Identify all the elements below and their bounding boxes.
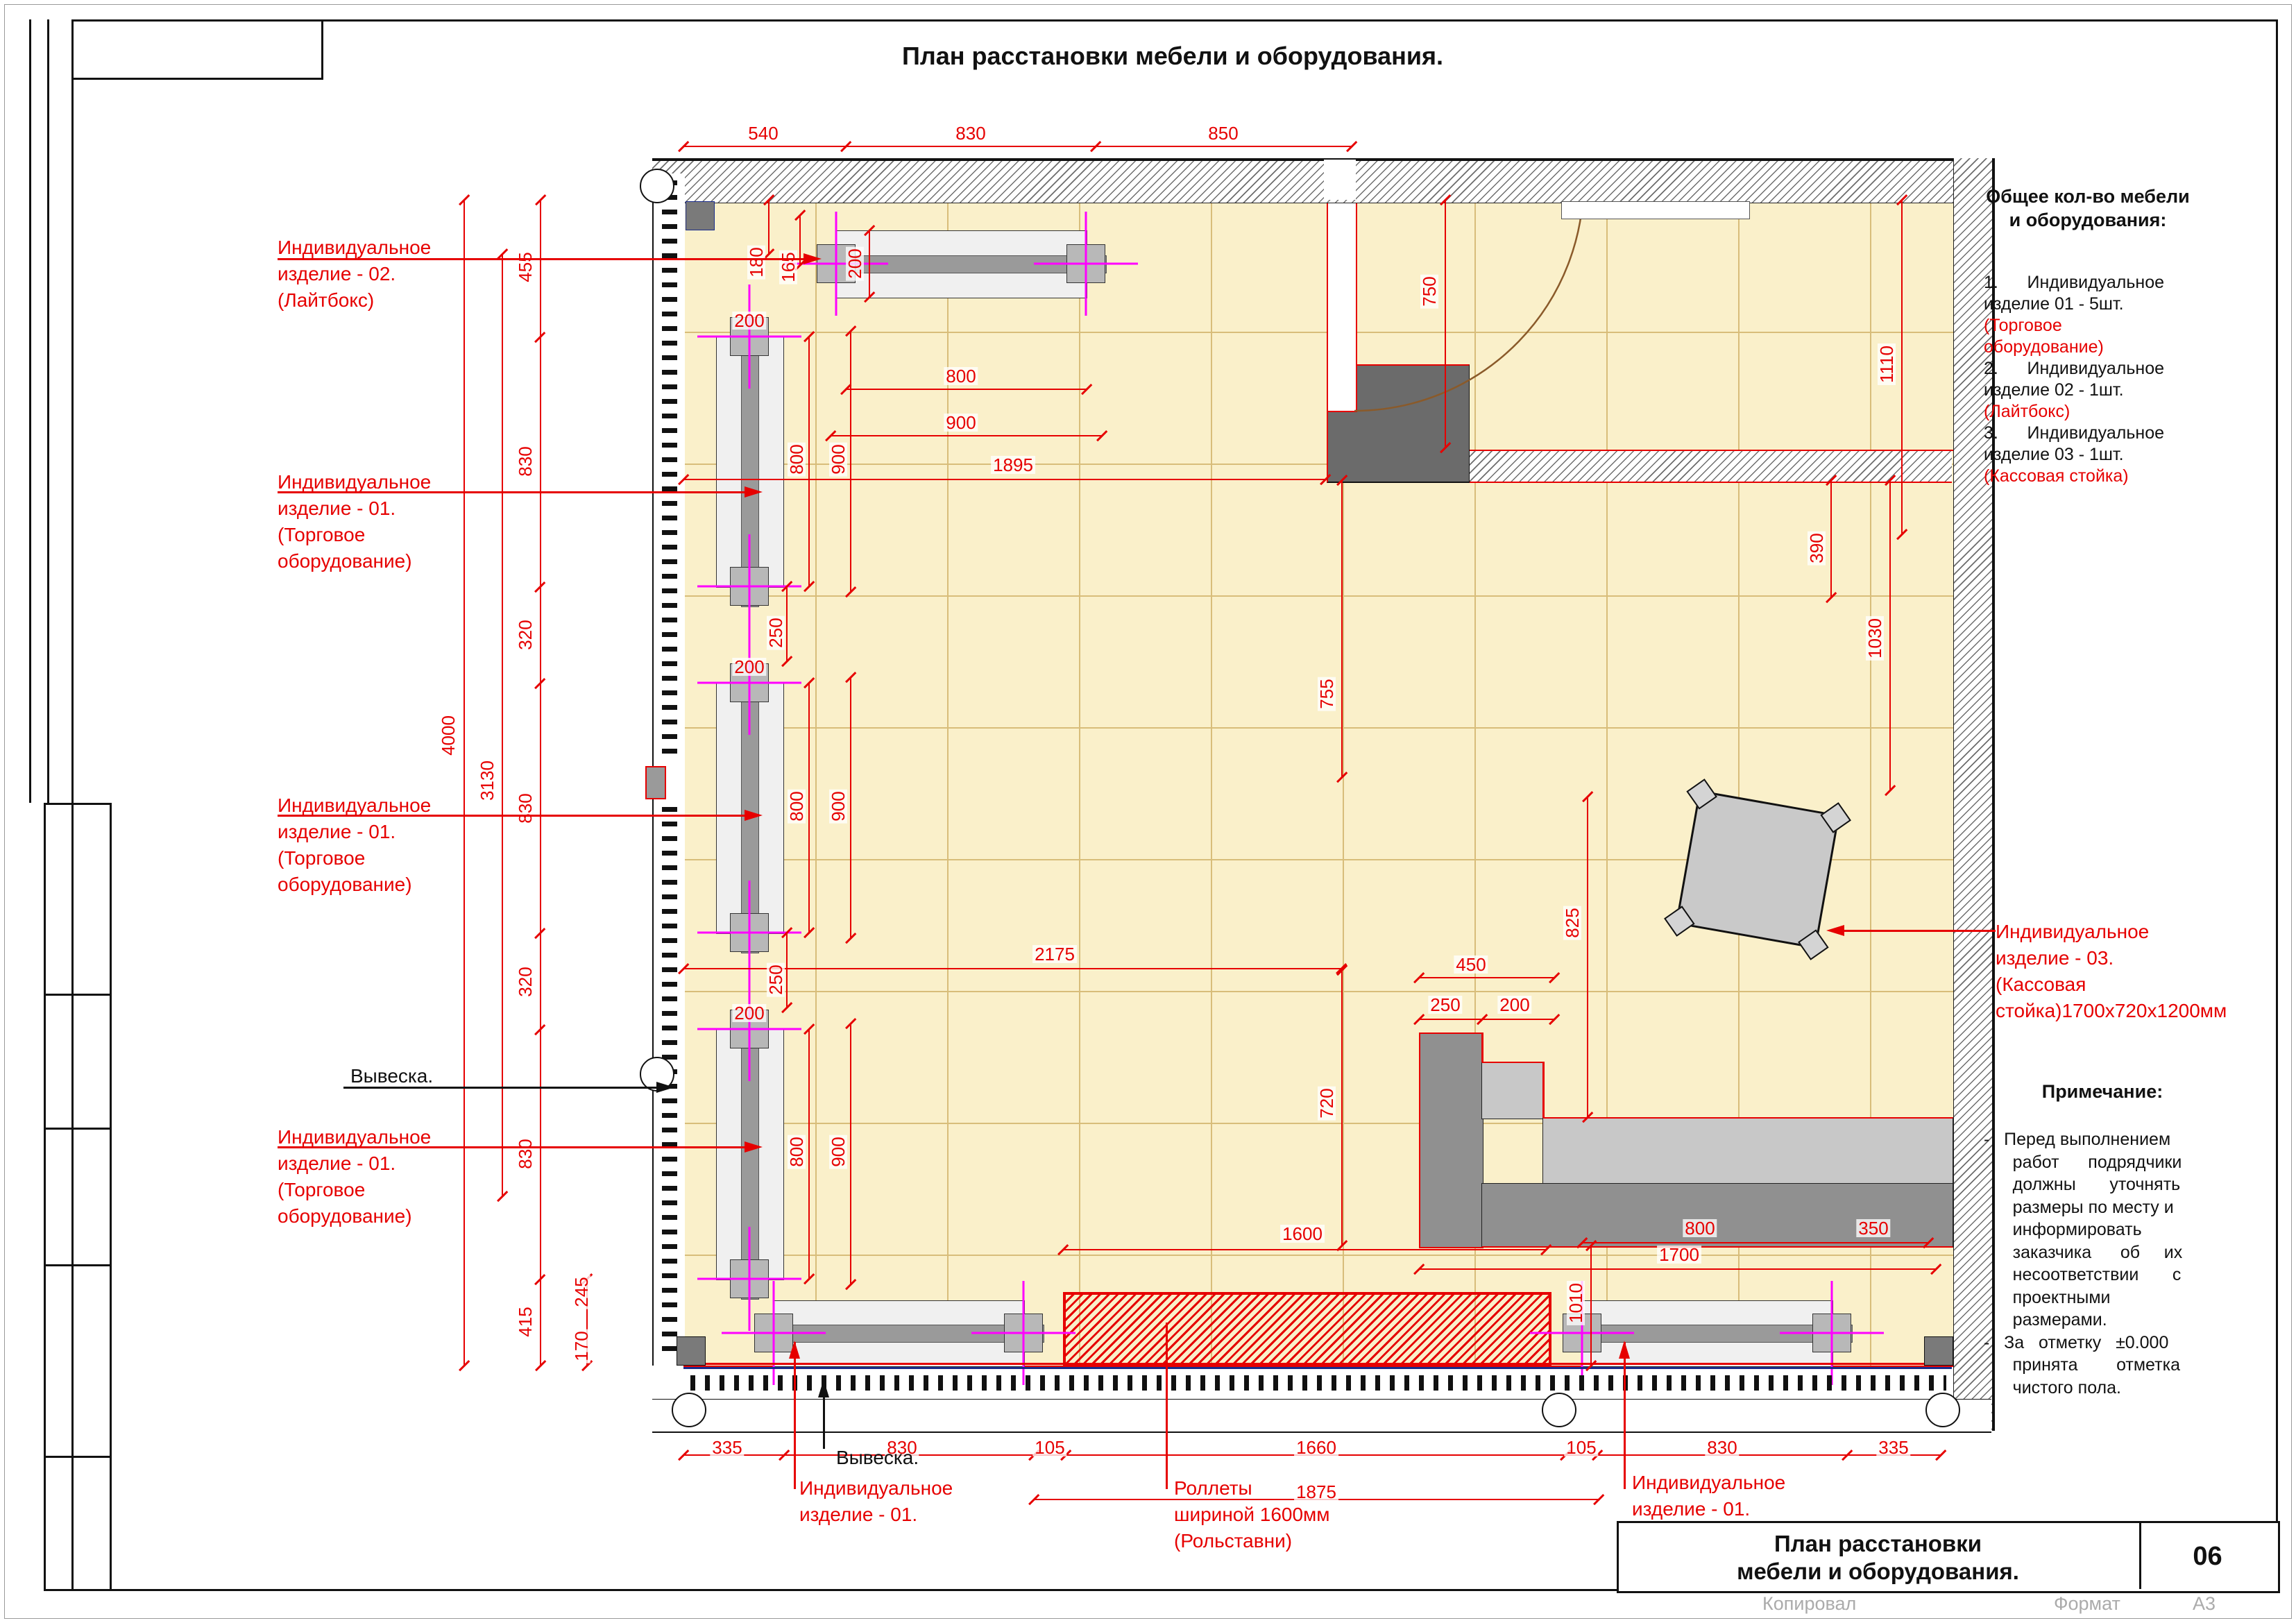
summary-item-line: 2. Индивидуальное — [1984, 358, 2234, 380]
dim-label: 200 — [732, 1004, 766, 1022]
dim-label: 1895 — [991, 456, 1035, 474]
summary-item-line: изделие 02 - 1шт. — [1984, 380, 2234, 401]
title-block-name-1: План расстановки — [1617, 1531, 2139, 1557]
leader-arrowhead-icon — [1619, 1341, 1630, 1359]
dimension-line — [831, 435, 1102, 436]
dim-label: 200 — [732, 658, 766, 676]
equipment-label: Вывеска. — [836, 1445, 919, 1471]
door-swing-arc — [1346, 167, 1596, 423]
dim-label: 830 — [516, 444, 534, 478]
dim-label: 1110 — [1878, 343, 1896, 385]
footer-copied: Копировал — [1762, 1593, 1856, 1615]
dim-label: 1660 — [1294, 1438, 1338, 1456]
equipment-label: Индивидуальноеизделие - 01.(Торговоеобор… — [278, 1124, 431, 1230]
summary-heading-1: Общее кол-во мебели — [1984, 186, 2192, 207]
leader-line — [1166, 1323, 1168, 1489]
dim-label: 3130 — [478, 758, 496, 803]
dim-label: 170 — [572, 1329, 590, 1363]
top-wall — [652, 158, 1991, 203]
dim-label: 415 — [516, 1305, 534, 1339]
sheet-number: 06 — [2139, 1542, 2276, 1572]
dim-label: 180 — [747, 245, 765, 279]
title-block-name-2: мебели и оборудования. — [1617, 1558, 2139, 1585]
note-line: чистого пола. — [1984, 1377, 2213, 1400]
dimension-line — [1445, 200, 1446, 448]
summary-item-line: 3. Индивидуальное — [1984, 423, 2234, 444]
dim-label: 320 — [516, 618, 534, 652]
dimension-line — [786, 933, 788, 1008]
dim-label: 455 — [516, 250, 534, 284]
dim-label: 105 — [1032, 1438, 1066, 1456]
note-line: принята отметка — [1984, 1354, 2213, 1377]
note-list: - Перед выполнением работ подрядчики дол… — [1984, 1128, 2213, 1399]
fixture-axis-cross-icon — [835, 212, 837, 316]
summary-item-line: 1. Индивидуальное — [1984, 272, 2234, 294]
dim-label: 1010 — [1567, 1281, 1585, 1325]
fixture-axis-cross-icon — [1085, 212, 1087, 316]
dim-label: 900 — [829, 789, 847, 823]
equipment-label: Индивидуальноеизделие - 01.(Торговоеобор… — [278, 792, 431, 898]
dimension-line — [808, 337, 810, 586]
equipment-label: Вывеска. — [350, 1063, 433, 1089]
note-line: размеры по месту и — [1984, 1196, 2213, 1219]
dim-label: 900 — [944, 414, 978, 432]
dim-label: 200 — [732, 312, 766, 330]
dim-label: 335 — [1876, 1438, 1910, 1456]
equipment-label: Роллетышириной 1600мм(Рольставни) — [1174, 1475, 1330, 1554]
dimension-line — [1419, 1268, 1936, 1270]
dimension-line — [1587, 797, 1588, 1117]
dimension-line — [786, 586, 788, 661]
summary-item-line: изделие 01 - 5шт. — [1984, 294, 2234, 315]
dimension-line — [1063, 1249, 1546, 1250]
fixture-axis-cross-icon — [749, 977, 751, 1081]
leader-arrowhead-icon — [803, 253, 822, 264]
dimension-line — [1590, 1246, 1592, 1366]
summary-item-line: (Лайтбокс) — [1984, 401, 2234, 423]
note-line: работ подрядчики — [1984, 1151, 2213, 1174]
storefront-pilaster — [645, 766, 666, 799]
fixture-axis-cross-icon — [749, 1227, 751, 1331]
dimension-line — [1889, 480, 1891, 790]
dim-label: 250 — [767, 615, 785, 649]
dim-label: 320 — [516, 965, 534, 999]
dim-label: 200 — [1497, 996, 1531, 1014]
dimension-line — [464, 200, 465, 1366]
note-line: размерами. — [1984, 1309, 2213, 1332]
dim-label: 830 — [1705, 1438, 1739, 1456]
dimension-line — [850, 331, 851, 592]
equipment-label: Индивидуальноеизделие - 01.(Торговоеобор… — [278, 469, 431, 575]
corner-column — [1924, 1336, 1953, 1366]
fixture-axis-cross-icon — [749, 631, 751, 735]
leader-line — [1624, 1342, 1626, 1489]
dim-label: 1700 — [1657, 1246, 1701, 1264]
dimension-line — [502, 254, 503, 1196]
note-line: должны уточнять — [1984, 1173, 2213, 1196]
leader-arrowhead-icon — [745, 1141, 763, 1153]
dim-label: 800 — [788, 789, 806, 823]
dimension-line — [1582, 1242, 1928, 1243]
dim-label: 900 — [829, 442, 847, 476]
dim-label: 335 — [710, 1438, 744, 1456]
dimension-line — [808, 683, 810, 933]
leader-arrowhead-icon — [1826, 925, 1844, 936]
summary-item-line: (Кассовая стойка) — [1984, 466, 2234, 487]
dimension-line — [1341, 480, 1343, 777]
dimension-line — [1419, 1019, 1554, 1020]
dim-label: 250 — [767, 962, 785, 996]
leader-arrowhead-icon — [789, 1341, 800, 1359]
summary-item-line: оборудование) — [1984, 337, 2234, 358]
note-line: - За отметку ±0.000 — [1984, 1332, 2213, 1354]
dim-label: 825 — [1563, 906, 1581, 940]
leader-line — [794, 1342, 796, 1489]
corner-column — [686, 201, 715, 230]
dimension-line — [768, 200, 769, 254]
dimension-line — [846, 389, 1087, 390]
dim-label: 800 — [944, 367, 978, 385]
floor-plan: 5408308501801652008009001895217520020020… — [0, 0, 2296, 1623]
dim-label: 390 — [1808, 531, 1826, 565]
dim-label: 200 — [846, 246, 864, 280]
equipment-label: Индивидуальноеизделие - 01. — [1632, 1470, 1785, 1522]
leader-arrowhead-icon — [745, 810, 763, 821]
sidewalk-band — [652, 1399, 1991, 1433]
dim-label: 540 — [746, 124, 780, 142]
dimension-line — [1341, 970, 1343, 1246]
bollard-circle — [1542, 1393, 1576, 1427]
dim-label: 800 — [788, 1135, 806, 1169]
dim-label: 1030 — [1866, 616, 1884, 661]
bottom-inner-face — [683, 1363, 1952, 1365]
fixture-axis-cross-icon — [749, 534, 751, 638]
dimension-line — [850, 1023, 851, 1284]
equipment-summary-list: 1. Индивидуальноеизделие 01 - 5шт.(Торго… — [1984, 272, 2234, 487]
dim-label: 4000 — [439, 713, 457, 758]
dim-label: 450 — [1454, 955, 1488, 974]
dim-label: 900 — [829, 1135, 847, 1169]
note-line: проектными — [1984, 1286, 2213, 1309]
dimension-line — [540, 200, 541, 1366]
dim-label: 850 — [1206, 124, 1240, 142]
dim-label: 350 — [1856, 1219, 1890, 1237]
dim-label: 830 — [516, 791, 534, 825]
dimension-line — [1419, 977, 1554, 978]
summary-heading-2: и оборудования: — [1984, 210, 2192, 231]
bollard-circle — [672, 1393, 706, 1427]
dim-label: 800 — [788, 442, 806, 476]
leader-arrowhead-icon — [818, 1379, 829, 1397]
corner-column — [677, 1336, 706, 1366]
dimension-line — [808, 1029, 810, 1279]
dim-label: 830 — [516, 1137, 534, 1171]
dimension-line — [869, 230, 870, 297]
window-niche — [1561, 201, 1750, 219]
dimension-line — [1901, 200, 1903, 534]
dim-label: 720 — [1318, 1086, 1336, 1120]
section-mark-circle — [640, 169, 674, 203]
summary-item-line: (Торговое — [1984, 315, 2234, 337]
note-heading: Примечание: — [1998, 1081, 2206, 1103]
note-line: - Перед выполнением — [1984, 1128, 2213, 1151]
dim-label: 2175 — [1032, 945, 1077, 963]
dimension-line — [683, 479, 1325, 480]
dim-label: 250 — [1428, 996, 1462, 1014]
drawing-sheet: План расстановки мебели и оборудования. — [0, 0, 2296, 1623]
fixture-axis-cross-icon — [749, 284, 751, 389]
equipment-label: Индивидуальноеизделие - 01. — [799, 1475, 953, 1528]
dim-label: 105 — [1564, 1438, 1598, 1456]
leader-line — [1844, 930, 1996, 932]
equipment-label: Индивидуальноеизделие - 02.(Лайтбокс) — [278, 235, 431, 314]
footer-format-value: А3 — [2193, 1593, 2216, 1615]
dim-label: 1600 — [1280, 1225, 1325, 1243]
dimension-line — [850, 677, 851, 938]
footer-format-label: Формат — [2054, 1593, 2120, 1615]
leader-arrowhead-icon — [656, 1082, 674, 1093]
dim-label: 755 — [1318, 677, 1336, 711]
dim-label: 830 — [953, 124, 987, 142]
bollard-circle — [1925, 1393, 1960, 1427]
note-line: несоответствии с — [1984, 1264, 2213, 1286]
leader-arrowhead-icon — [745, 486, 763, 498]
bottom-storefront-mullions — [690, 1375, 1946, 1391]
dim-label: 245 — [572, 1275, 590, 1309]
dim-label: 165 — [779, 250, 797, 284]
dim-label: 800 — [1683, 1219, 1717, 1237]
interior-wall — [1468, 450, 1952, 483]
dimension-line — [1830, 480, 1832, 597]
note-line: заказчика об их — [1984, 1241, 2213, 1264]
dimension-line — [683, 146, 1352, 147]
equipment-label: Индивидуальноеизделие - 03.(Кассоваястой… — [1996, 919, 2227, 1024]
note-line: информировать — [1984, 1218, 2213, 1241]
top-wall-door-gap — [1324, 160, 1356, 200]
dim-label: 750 — [1420, 274, 1438, 308]
summary-item-line: изделие 03 - 1шт. — [1984, 444, 2234, 466]
